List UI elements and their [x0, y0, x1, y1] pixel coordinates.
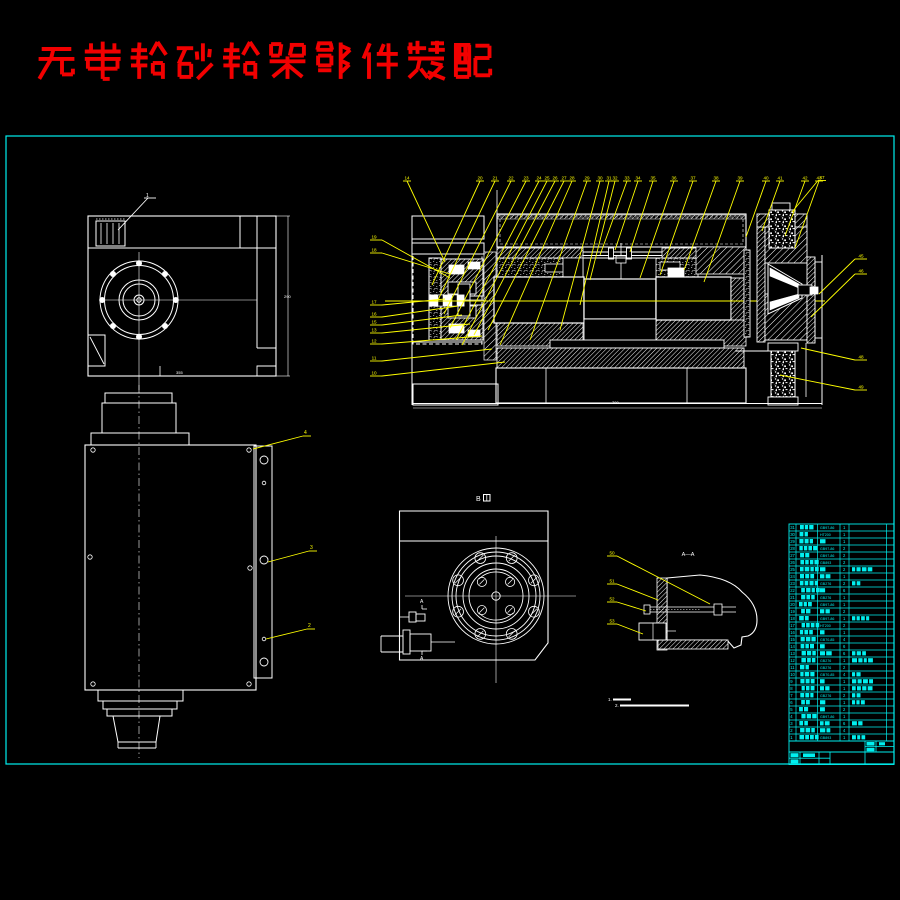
svg-text:HT200: HT200 — [820, 624, 831, 628]
svg-text:38: 38 — [713, 176, 719, 181]
svg-text:2: 2 — [308, 623, 311, 629]
svg-text:20: 20 — [790, 602, 795, 607]
svg-text:19: 19 — [371, 235, 377, 240]
svg-text:21: 21 — [790, 595, 795, 600]
svg-text:36: 36 — [671, 176, 677, 181]
svg-text:28: 28 — [790, 546, 795, 551]
svg-text:25: 25 — [544, 176, 550, 181]
svg-text:GB70-85: GB70-85 — [820, 638, 834, 642]
svg-text:18: 18 — [371, 248, 377, 253]
svg-text:780: 780 — [612, 400, 619, 405]
svg-text:20: 20 — [477, 176, 483, 181]
svg-text:41: 41 — [777, 176, 783, 181]
svg-text:31: 31 — [790, 525, 795, 530]
svg-text:24: 24 — [536, 176, 542, 181]
svg-text:51: 51 — [609, 579, 615, 584]
svg-text:B: B — [476, 496, 481, 503]
svg-text:3: 3 — [310, 545, 313, 551]
svg-text:22: 22 — [508, 176, 514, 181]
svg-text:37: 37 — [690, 176, 696, 181]
svg-text:16: 16 — [371, 312, 377, 317]
svg-text:49: 49 — [858, 385, 864, 390]
svg-text:13: 13 — [371, 328, 377, 333]
svg-text:23: 23 — [523, 176, 529, 181]
svg-text:29: 29 — [584, 176, 590, 181]
svg-text:19: 19 — [790, 609, 795, 614]
svg-text:12: 12 — [371, 339, 377, 344]
svg-text:50: 50 — [609, 551, 615, 556]
svg-text:18: 18 — [790, 616, 795, 621]
svg-text:15: 15 — [371, 320, 377, 325]
svg-text:1: 1 — [146, 193, 149, 199]
svg-text:HT200: HT200 — [820, 533, 831, 537]
svg-text:46: 46 — [858, 269, 864, 274]
svg-text:16: 16 — [790, 630, 795, 635]
svg-text:15: 15 — [790, 637, 795, 642]
svg-text:47: 47 — [819, 175, 825, 180]
svg-text:29: 29 — [790, 539, 795, 544]
svg-text:11: 11 — [790, 665, 795, 670]
svg-text:4: 4 — [304, 430, 307, 436]
svg-text:GB97-86: GB97-86 — [820, 526, 834, 530]
svg-text:21: 21 — [492, 176, 498, 181]
svg-text:290: 290 — [284, 294, 291, 299]
svg-text:2.: 2. — [615, 703, 619, 708]
svg-text:10: 10 — [790, 672, 795, 677]
svg-text:11: 11 — [372, 356, 377, 361]
svg-text:13: 13 — [790, 651, 795, 656]
svg-text:GB276: GB276 — [820, 666, 831, 670]
svg-text:GB97-86: GB97-86 — [820, 617, 834, 621]
svg-text:30: 30 — [790, 532, 795, 537]
svg-text:GB893: GB893 — [820, 736, 831, 740]
svg-text:31: 31 — [606, 176, 612, 181]
svg-text:32: 32 — [612, 176, 618, 181]
svg-text:14: 14 — [404, 176, 410, 181]
svg-text:48: 48 — [858, 355, 864, 360]
svg-text:34: 34 — [635, 176, 641, 181]
svg-text:23: 23 — [790, 581, 795, 586]
svg-text:22: 22 — [790, 588, 795, 593]
svg-text:GB276: GB276 — [820, 596, 831, 600]
svg-text:39: 39 — [737, 176, 743, 181]
svg-text:53: 53 — [609, 619, 615, 624]
svg-text:GB276: GB276 — [820, 659, 831, 663]
svg-text:17: 17 — [790, 623, 795, 628]
svg-text:GB276: GB276 — [820, 694, 831, 698]
svg-text:27: 27 — [561, 176, 567, 181]
svg-text:GB276: GB276 — [820, 582, 831, 586]
svg-text:GB97-86: GB97-86 — [820, 554, 834, 558]
svg-text:26: 26 — [790, 560, 795, 565]
svg-text:17: 17 — [371, 300, 377, 305]
svg-text:10: 10 — [371, 371, 377, 376]
svg-text:24: 24 — [790, 574, 795, 579]
svg-text:GB97-86: GB97-86 — [820, 547, 834, 551]
svg-text:14: 14 — [790, 644, 795, 649]
svg-text:33: 33 — [624, 176, 630, 181]
svg-text:35: 35 — [650, 176, 656, 181]
svg-text:42: 42 — [802, 176, 808, 181]
svg-text:GB97-86: GB97-86 — [820, 715, 834, 719]
svg-text:30: 30 — [597, 176, 603, 181]
svg-text:25: 25 — [790, 567, 795, 572]
svg-text:52: 52 — [609, 597, 615, 602]
svg-text:40: 40 — [763, 176, 769, 181]
svg-text:26: 26 — [552, 176, 558, 181]
svg-text:1.: 1. — [608, 697, 612, 702]
svg-text:28: 28 — [569, 176, 575, 181]
svg-text:GB893: GB893 — [820, 561, 831, 565]
svg-text:45: 45 — [858, 254, 864, 259]
svg-text:A—A: A—A — [682, 552, 695, 558]
svg-text:27: 27 — [790, 553, 795, 558]
svg-text:355: 355 — [176, 370, 183, 375]
svg-text:GB70-85: GB70-85 — [820, 673, 834, 677]
svg-text:12: 12 — [790, 658, 795, 663]
svg-text:GB97-86: GB97-86 — [820, 603, 834, 607]
